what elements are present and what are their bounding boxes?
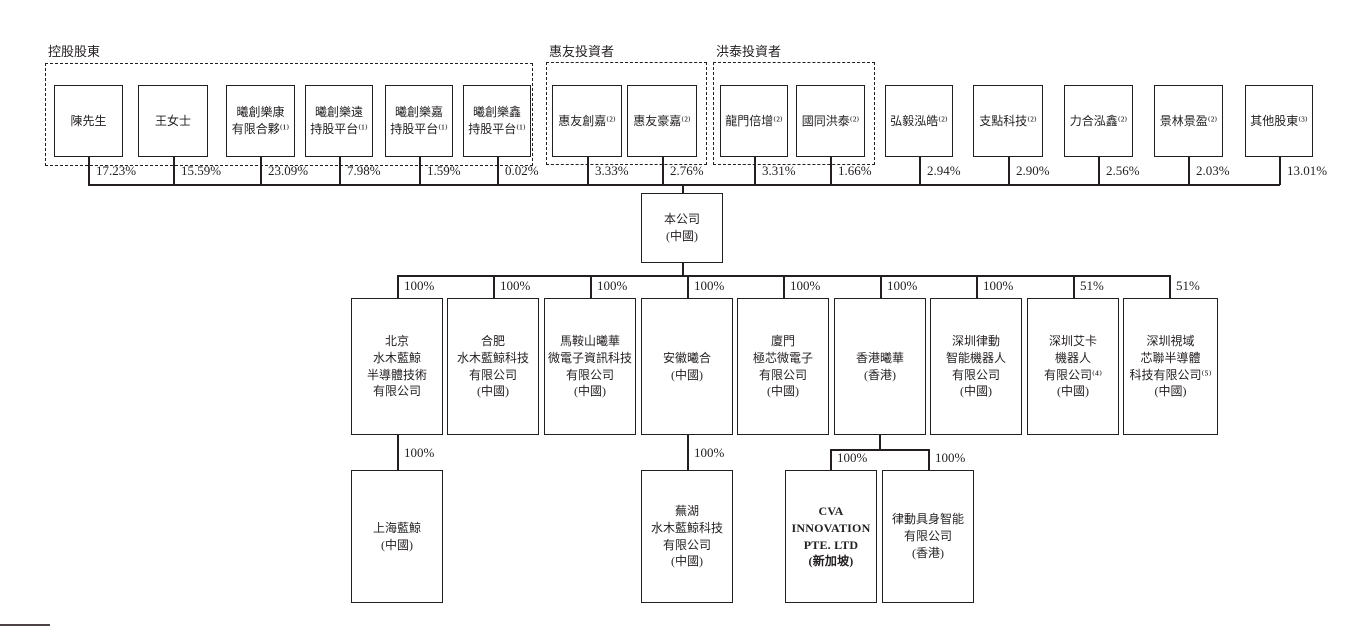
- shareholder-box: 曦創樂遠 持股平台⁽¹⁾: [305, 85, 373, 157]
- shareholder-box: 惠友創嘉⁽²⁾: [552, 85, 622, 157]
- connector-line: [830, 449, 832, 470]
- footnote-rule: [0, 624, 50, 626]
- connector-line: [497, 157, 499, 185]
- ownership-pct: 7.98%: [347, 164, 381, 177]
- connector-line: [1098, 157, 1100, 185]
- connector-line: [1188, 157, 1190, 185]
- shareholder-box: 弘毅泓皓⁽²⁾: [885, 85, 953, 157]
- ownership-pct: 100%: [935, 451, 965, 464]
- connector-line: [88, 157, 90, 185]
- ownership-pct: 1.59%: [427, 164, 461, 177]
- ownership-pct: 2.94%: [927, 164, 961, 177]
- ownership-pct: 100%: [404, 446, 434, 459]
- connector-line: [397, 435, 399, 470]
- ownership-pct: 2.76%: [670, 164, 704, 177]
- connector-line: [687, 435, 689, 470]
- ownership-pct: 100%: [790, 279, 820, 292]
- connector-line: [1073, 275, 1075, 298]
- connector-line: [587, 157, 589, 185]
- ownership-pct: 15.59%: [181, 164, 221, 177]
- connector-line: [590, 275, 592, 298]
- group-label-hongtai-investors: 洪泰投資者: [716, 45, 781, 58]
- connector-line: [88, 184, 1280, 186]
- connector-line: [339, 157, 341, 185]
- connector-line: [830, 157, 832, 185]
- connector-line: [754, 157, 756, 185]
- subsidiary-box: 深圳律動 智能機器人 有限公司 (中國): [930, 298, 1022, 435]
- shareholder-box: 景林景盈⁽²⁾: [1154, 85, 1223, 157]
- shareholder-box: 曦創樂鑫 持股平台⁽¹⁾: [463, 85, 531, 157]
- ownership-pct: 0.02%: [505, 164, 539, 177]
- ownership-pct: 100%: [983, 279, 1013, 292]
- subsidiary-box: 馬鞍山曦華 微電子資訊科技 有限公司 (中國): [544, 298, 636, 435]
- shareholder-box: 曦創樂嘉 持股平台⁽¹⁾: [385, 85, 453, 157]
- company-box: 本公司 (中國): [641, 193, 723, 263]
- shareholder-box: 龍門倍增⁽²⁾: [720, 85, 788, 157]
- ownership-pct: 51%: [1080, 279, 1104, 292]
- sub-subsidiary-box: 蕪湖 水木藍鯨科技 有限公司 (中國): [641, 470, 733, 603]
- sub-subsidiary-box: 上海藍鯨 (中國): [351, 470, 443, 603]
- shareholder-box: 其他股東⁽³⁾: [1245, 85, 1313, 157]
- group-label-controlling-shareholders: 控股股東: [48, 45, 100, 58]
- connector-line: [783, 275, 785, 298]
- ownership-pct: 3.31%: [762, 164, 796, 177]
- connector-line: [919, 157, 921, 185]
- connector-line: [880, 275, 882, 298]
- ownership-pct: 100%: [404, 279, 434, 292]
- shareholding-structure-diagram: 控股股東 惠友投資者 洪泰投資者 陳先生 王女士 曦創樂康 有限合夥⁽¹⁾ 曦創…: [0, 0, 1352, 640]
- shareholder-box: 曦創樂康 有限合夥⁽¹⁾: [226, 85, 295, 157]
- ownership-pct: 23.09%: [268, 164, 308, 177]
- ownership-pct: 3.33%: [595, 164, 629, 177]
- sub-subsidiary-box: CVA INNOVATION PTE. LTD (新加坡): [785, 470, 877, 603]
- sub-subsidiary-box: 律動具身智能 有限公司 (香港): [882, 470, 974, 603]
- ownership-pct: 100%: [694, 446, 724, 459]
- subsidiary-box: 北京 水木藍鯨 半導體技術 有限公司: [351, 298, 443, 435]
- shareholder-box: 力合泓鑫⁽²⁾: [1064, 85, 1133, 157]
- ownership-pct: 100%: [887, 279, 917, 292]
- group-label-huiyou-investors: 惠友投資者: [549, 45, 614, 58]
- connector-line: [879, 435, 881, 450]
- connector-line: [260, 157, 262, 185]
- shareholder-box: 支點科技⁽²⁾: [973, 85, 1043, 157]
- ownership-pct: 13.01%: [1287, 164, 1327, 177]
- connector-line: [662, 157, 664, 185]
- ownership-pct: 1.66%: [838, 164, 872, 177]
- connector-line: [173, 157, 175, 185]
- connector-line: [1279, 157, 1281, 185]
- ownership-pct: 2.56%: [1106, 164, 1140, 177]
- subsidiary-box: 香港曦華 (香港): [834, 298, 926, 435]
- subsidiary-box: 深圳艾卡 機器人 有限公司⁽⁴⁾ (中國): [1027, 298, 1119, 435]
- connector-line: [687, 275, 689, 298]
- ownership-pct: 100%: [837, 451, 867, 464]
- ownership-pct: 100%: [694, 279, 724, 292]
- connector-line: [1008, 157, 1010, 185]
- ownership-pct: 100%: [597, 279, 627, 292]
- shareholder-box: 國同洪泰⁽²⁾: [796, 85, 865, 157]
- ownership-pct: 2.03%: [1196, 164, 1230, 177]
- subsidiary-box: 安徽曦合 (中國): [641, 298, 733, 435]
- shareholder-box: 王女士: [138, 85, 208, 157]
- ownership-pct: 17.23%: [96, 164, 136, 177]
- shareholder-box: 惠友豪嘉⁽²⁾: [627, 85, 697, 157]
- connector-line: [976, 275, 978, 298]
- ownership-pct: 100%: [500, 279, 530, 292]
- ownership-pct: 2.90%: [1016, 164, 1050, 177]
- subsidiary-box: 廈門 極芯微電子 有限公司 (中國): [737, 298, 829, 435]
- connector-line: [493, 275, 495, 298]
- connector-line: [1169, 275, 1171, 298]
- connector-line: [419, 157, 421, 185]
- connector-line: [682, 184, 684, 193]
- subsidiary-box: 深圳視域 芯聯半導體 科技有限公司⁽⁵⁾ (中國): [1123, 298, 1218, 435]
- shareholder-box: 陳先生: [54, 85, 123, 157]
- subsidiary-box: 合肥 水木藍鯨科技 有限公司 (中國): [447, 298, 539, 435]
- connector-line: [928, 449, 930, 470]
- ownership-pct: 51%: [1176, 279, 1200, 292]
- connector-line: [397, 275, 399, 298]
